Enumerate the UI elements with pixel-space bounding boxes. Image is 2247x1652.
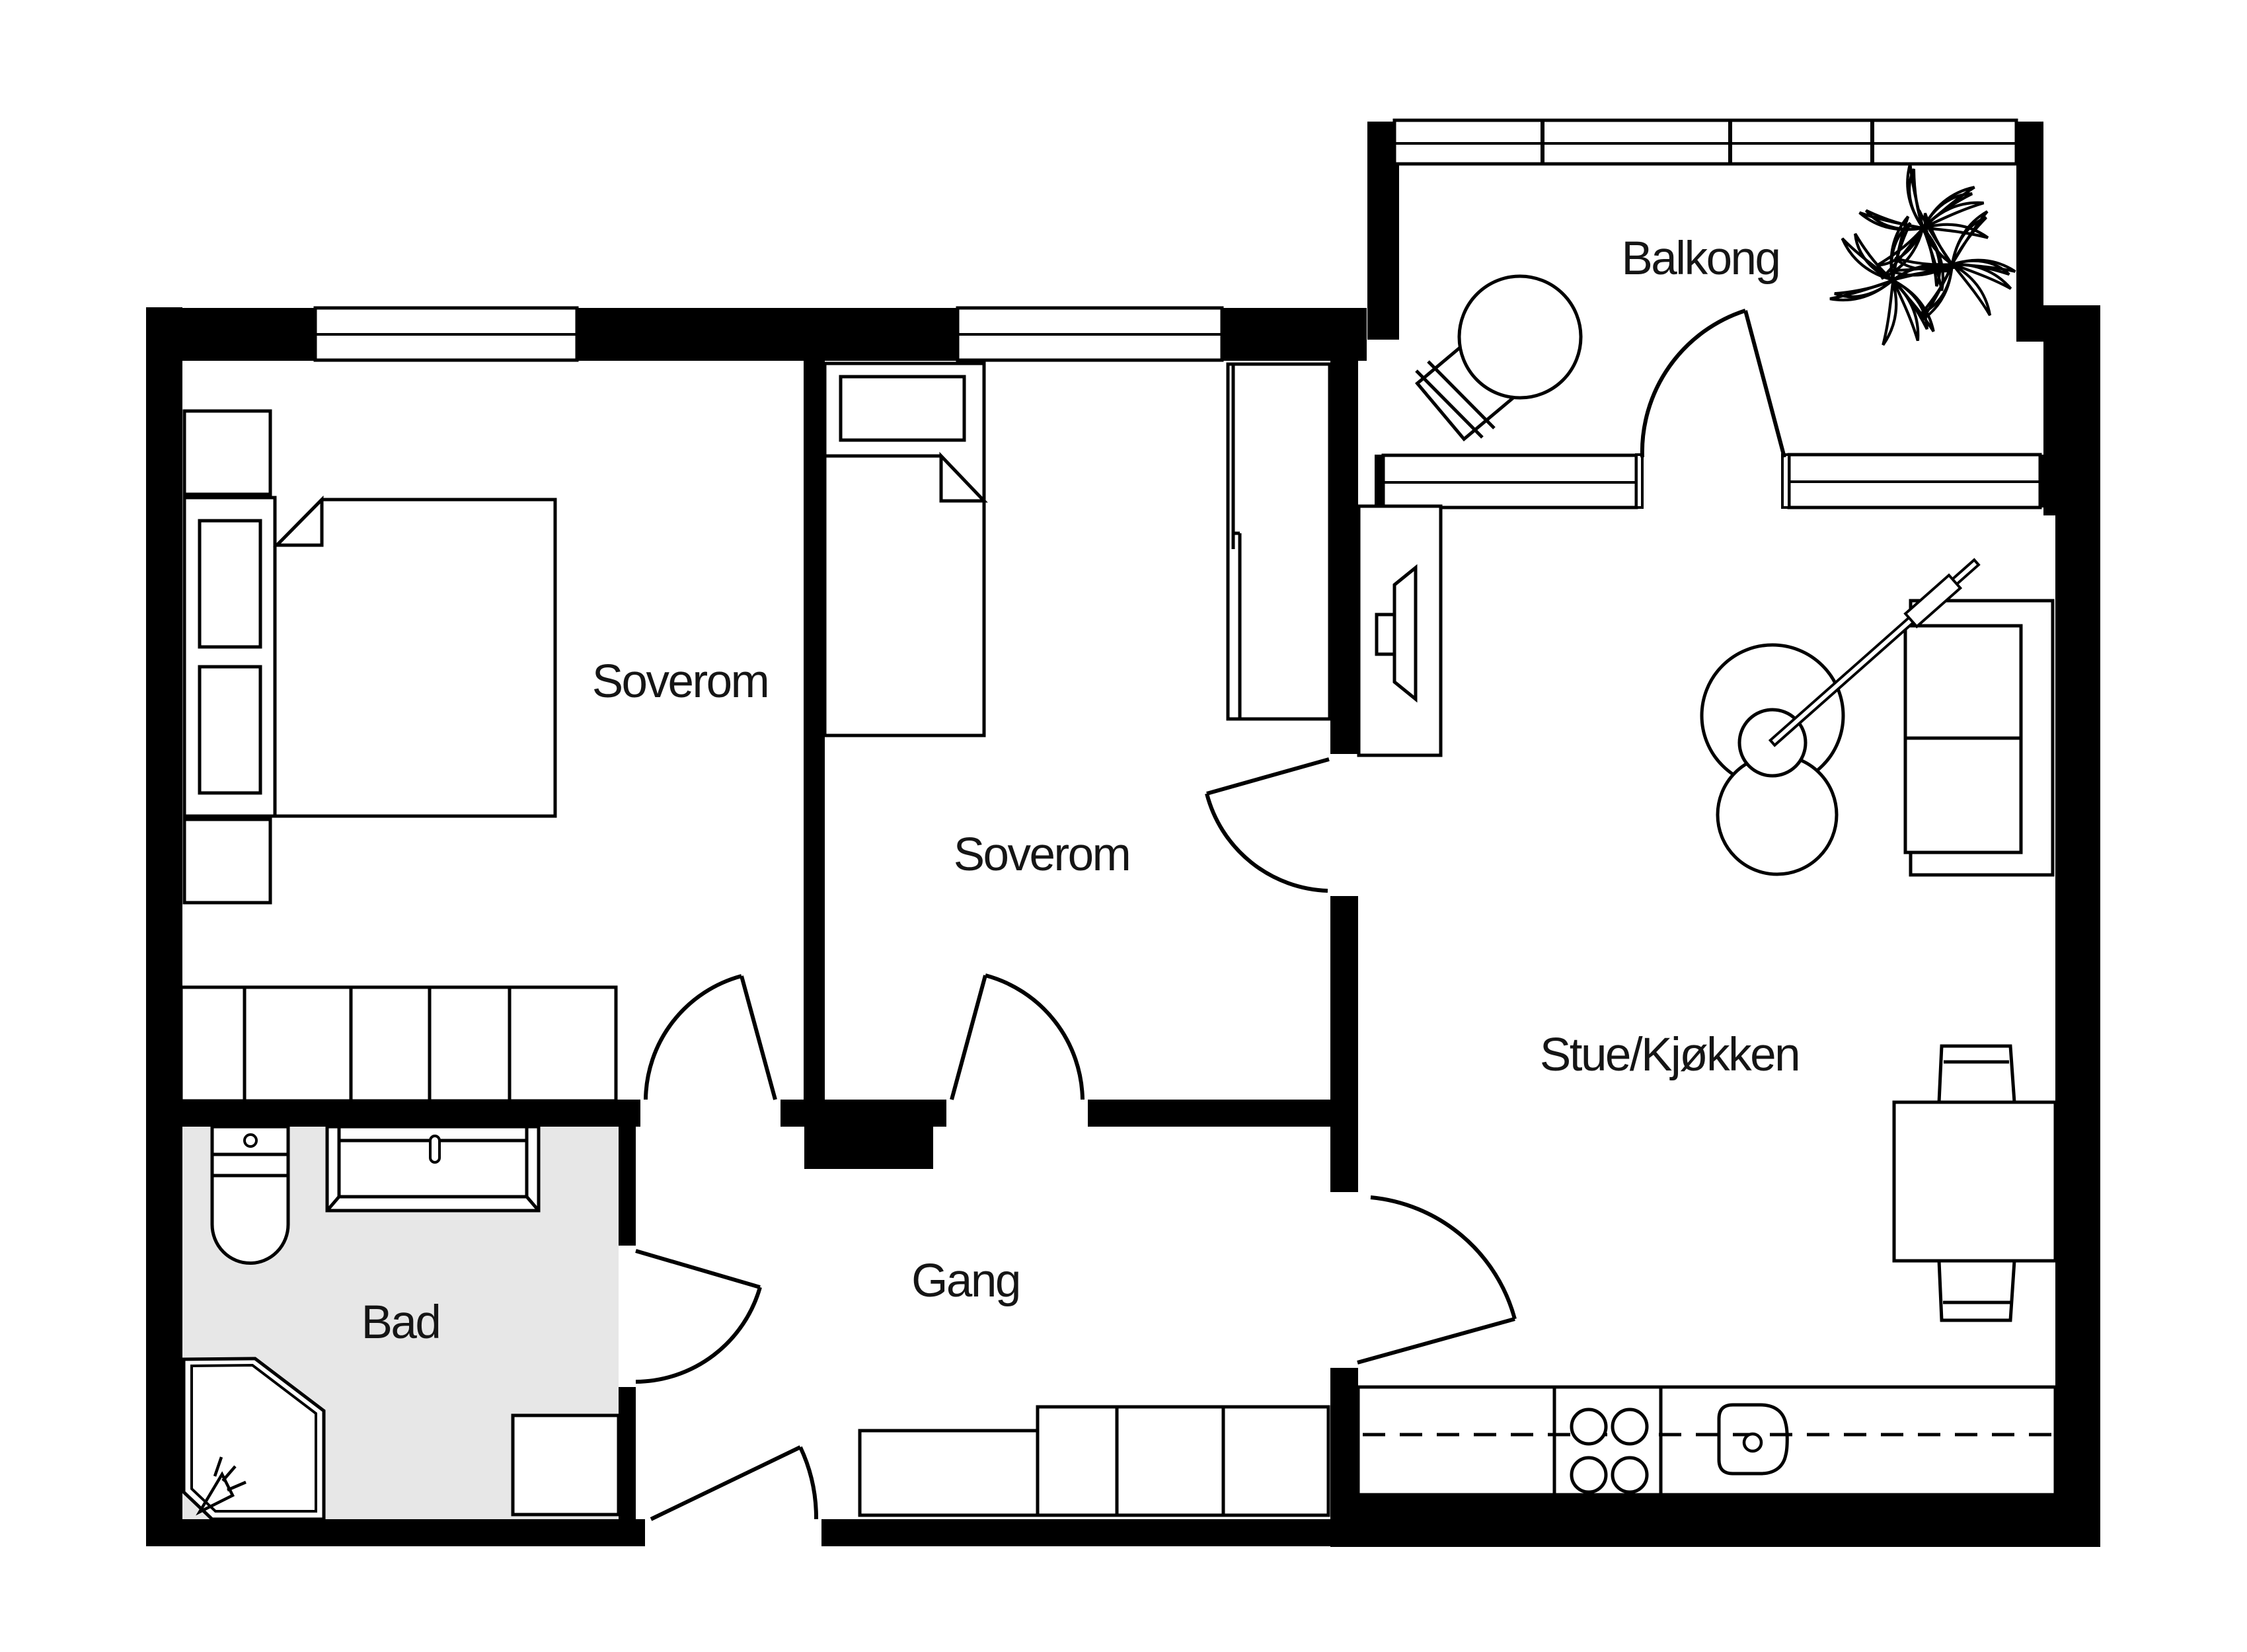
svg-text:Balkong: Balkong (1621, 233, 1779, 285)
svg-text:Gang: Gang (911, 1255, 1020, 1307)
svg-text:Stue/Kjøkken: Stue/Kjøkken (1540, 1029, 1799, 1081)
svg-text:Soverom: Soverom (954, 829, 1130, 881)
svg-text:Bad: Bad (362, 1296, 440, 1349)
svg-text:Soverom: Soverom (592, 656, 769, 708)
